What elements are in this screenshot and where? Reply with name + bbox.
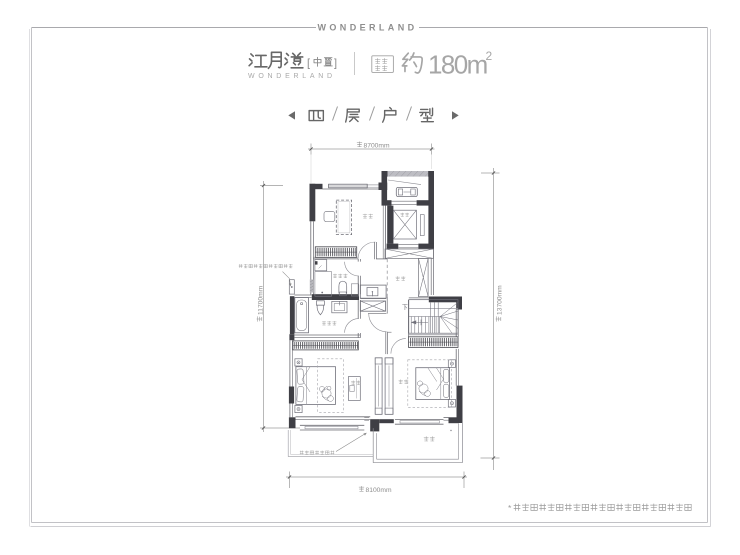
svg-text:WONDERLAND: WONDERLAND xyxy=(318,23,418,33)
svg-text:WONDERLAND: WONDERLAND xyxy=(248,73,335,80)
svg-text:8700mm: 8700mm xyxy=(364,142,390,149)
svg-text:[: [ xyxy=(307,58,310,70)
svg-text:]: ] xyxy=(334,58,337,70)
svg-text:2: 2 xyxy=(486,49,493,63)
svg-text:11700mm: 11700mm xyxy=(257,285,264,315)
svg-text:180m: 180m xyxy=(428,50,487,80)
svg-text:8100mm: 8100mm xyxy=(366,487,392,494)
svg-text:13700mm: 13700mm xyxy=(496,285,503,315)
